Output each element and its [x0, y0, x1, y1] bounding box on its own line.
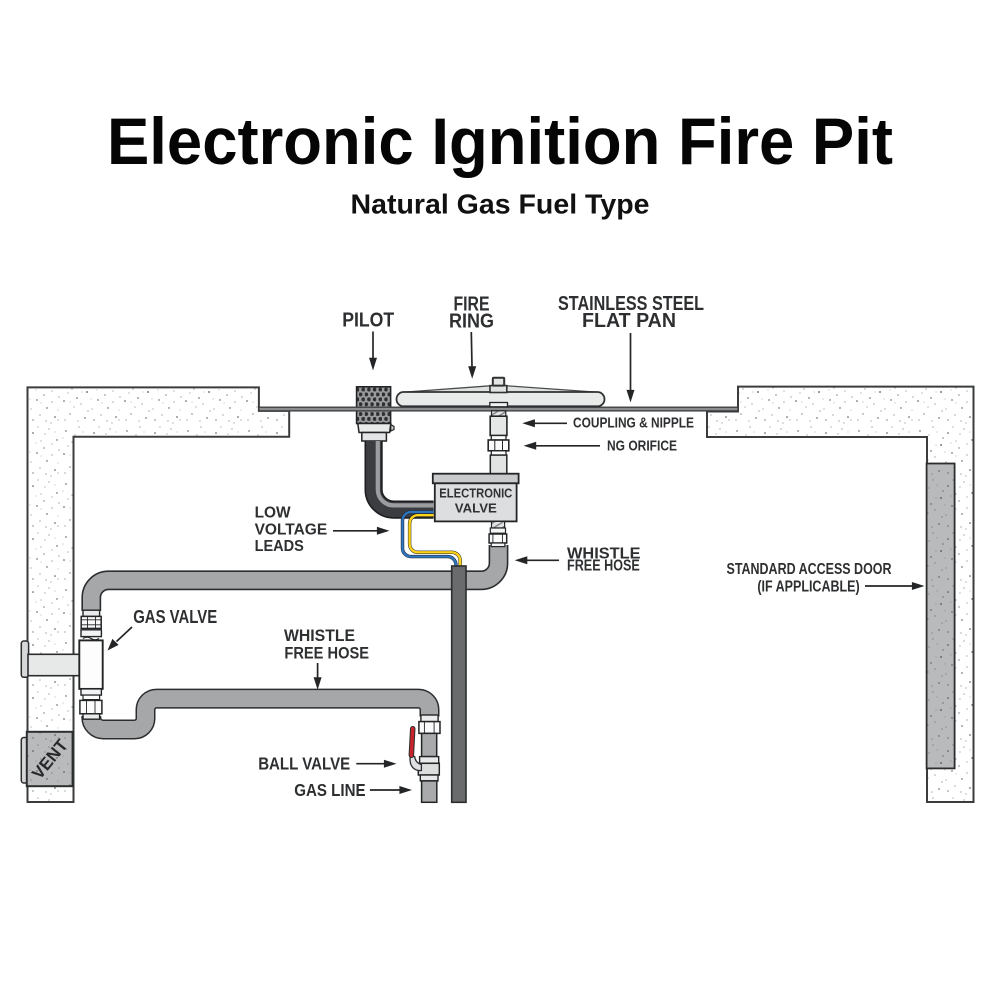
svg-text:LEADS: LEADS	[255, 538, 305, 555]
svg-text:WHISTLE: WHISTLE	[284, 626, 355, 645]
svg-text:COUPLING & NIPPLE: COUPLING & NIPPLE	[573, 416, 694, 432]
svg-text:GAS VALVE: GAS VALVE	[133, 607, 217, 627]
svg-text:(IF APPLICABLE): (IF APPLICABLE)	[757, 578, 859, 595]
svg-text:NG ORIFICE: NG ORIFICE	[607, 439, 677, 455]
svg-text:FREE HOSE: FREE HOSE	[567, 558, 640, 575]
svg-text:LOW: LOW	[255, 505, 292, 522]
svg-text:ELECTRONIC: ELECTRONIC	[439, 486, 513, 501]
svg-text:VOLTAGE: VOLTAGE	[255, 522, 328, 539]
svg-text:Electronic Ignition Fire Pit: Electronic Ignition Fire Pit	[107, 104, 893, 178]
svg-text:BALL VALVE: BALL VALVE	[258, 754, 350, 774]
svg-text:FLAT PAN: FLAT PAN	[582, 309, 676, 332]
svg-text:RING: RING	[449, 309, 494, 332]
svg-text:FREE HOSE: FREE HOSE	[284, 643, 369, 662]
svg-text:VALVE: VALVE	[455, 501, 497, 516]
svg-text:GAS LINE: GAS LINE	[294, 780, 365, 800]
svg-text:PILOT: PILOT	[342, 309, 394, 332]
svg-text:STANDARD ACCESS DOOR: STANDARD ACCESS DOOR	[727, 561, 892, 578]
svg-text:Natural Gas Fuel Type: Natural Gas Fuel Type	[351, 189, 650, 220]
